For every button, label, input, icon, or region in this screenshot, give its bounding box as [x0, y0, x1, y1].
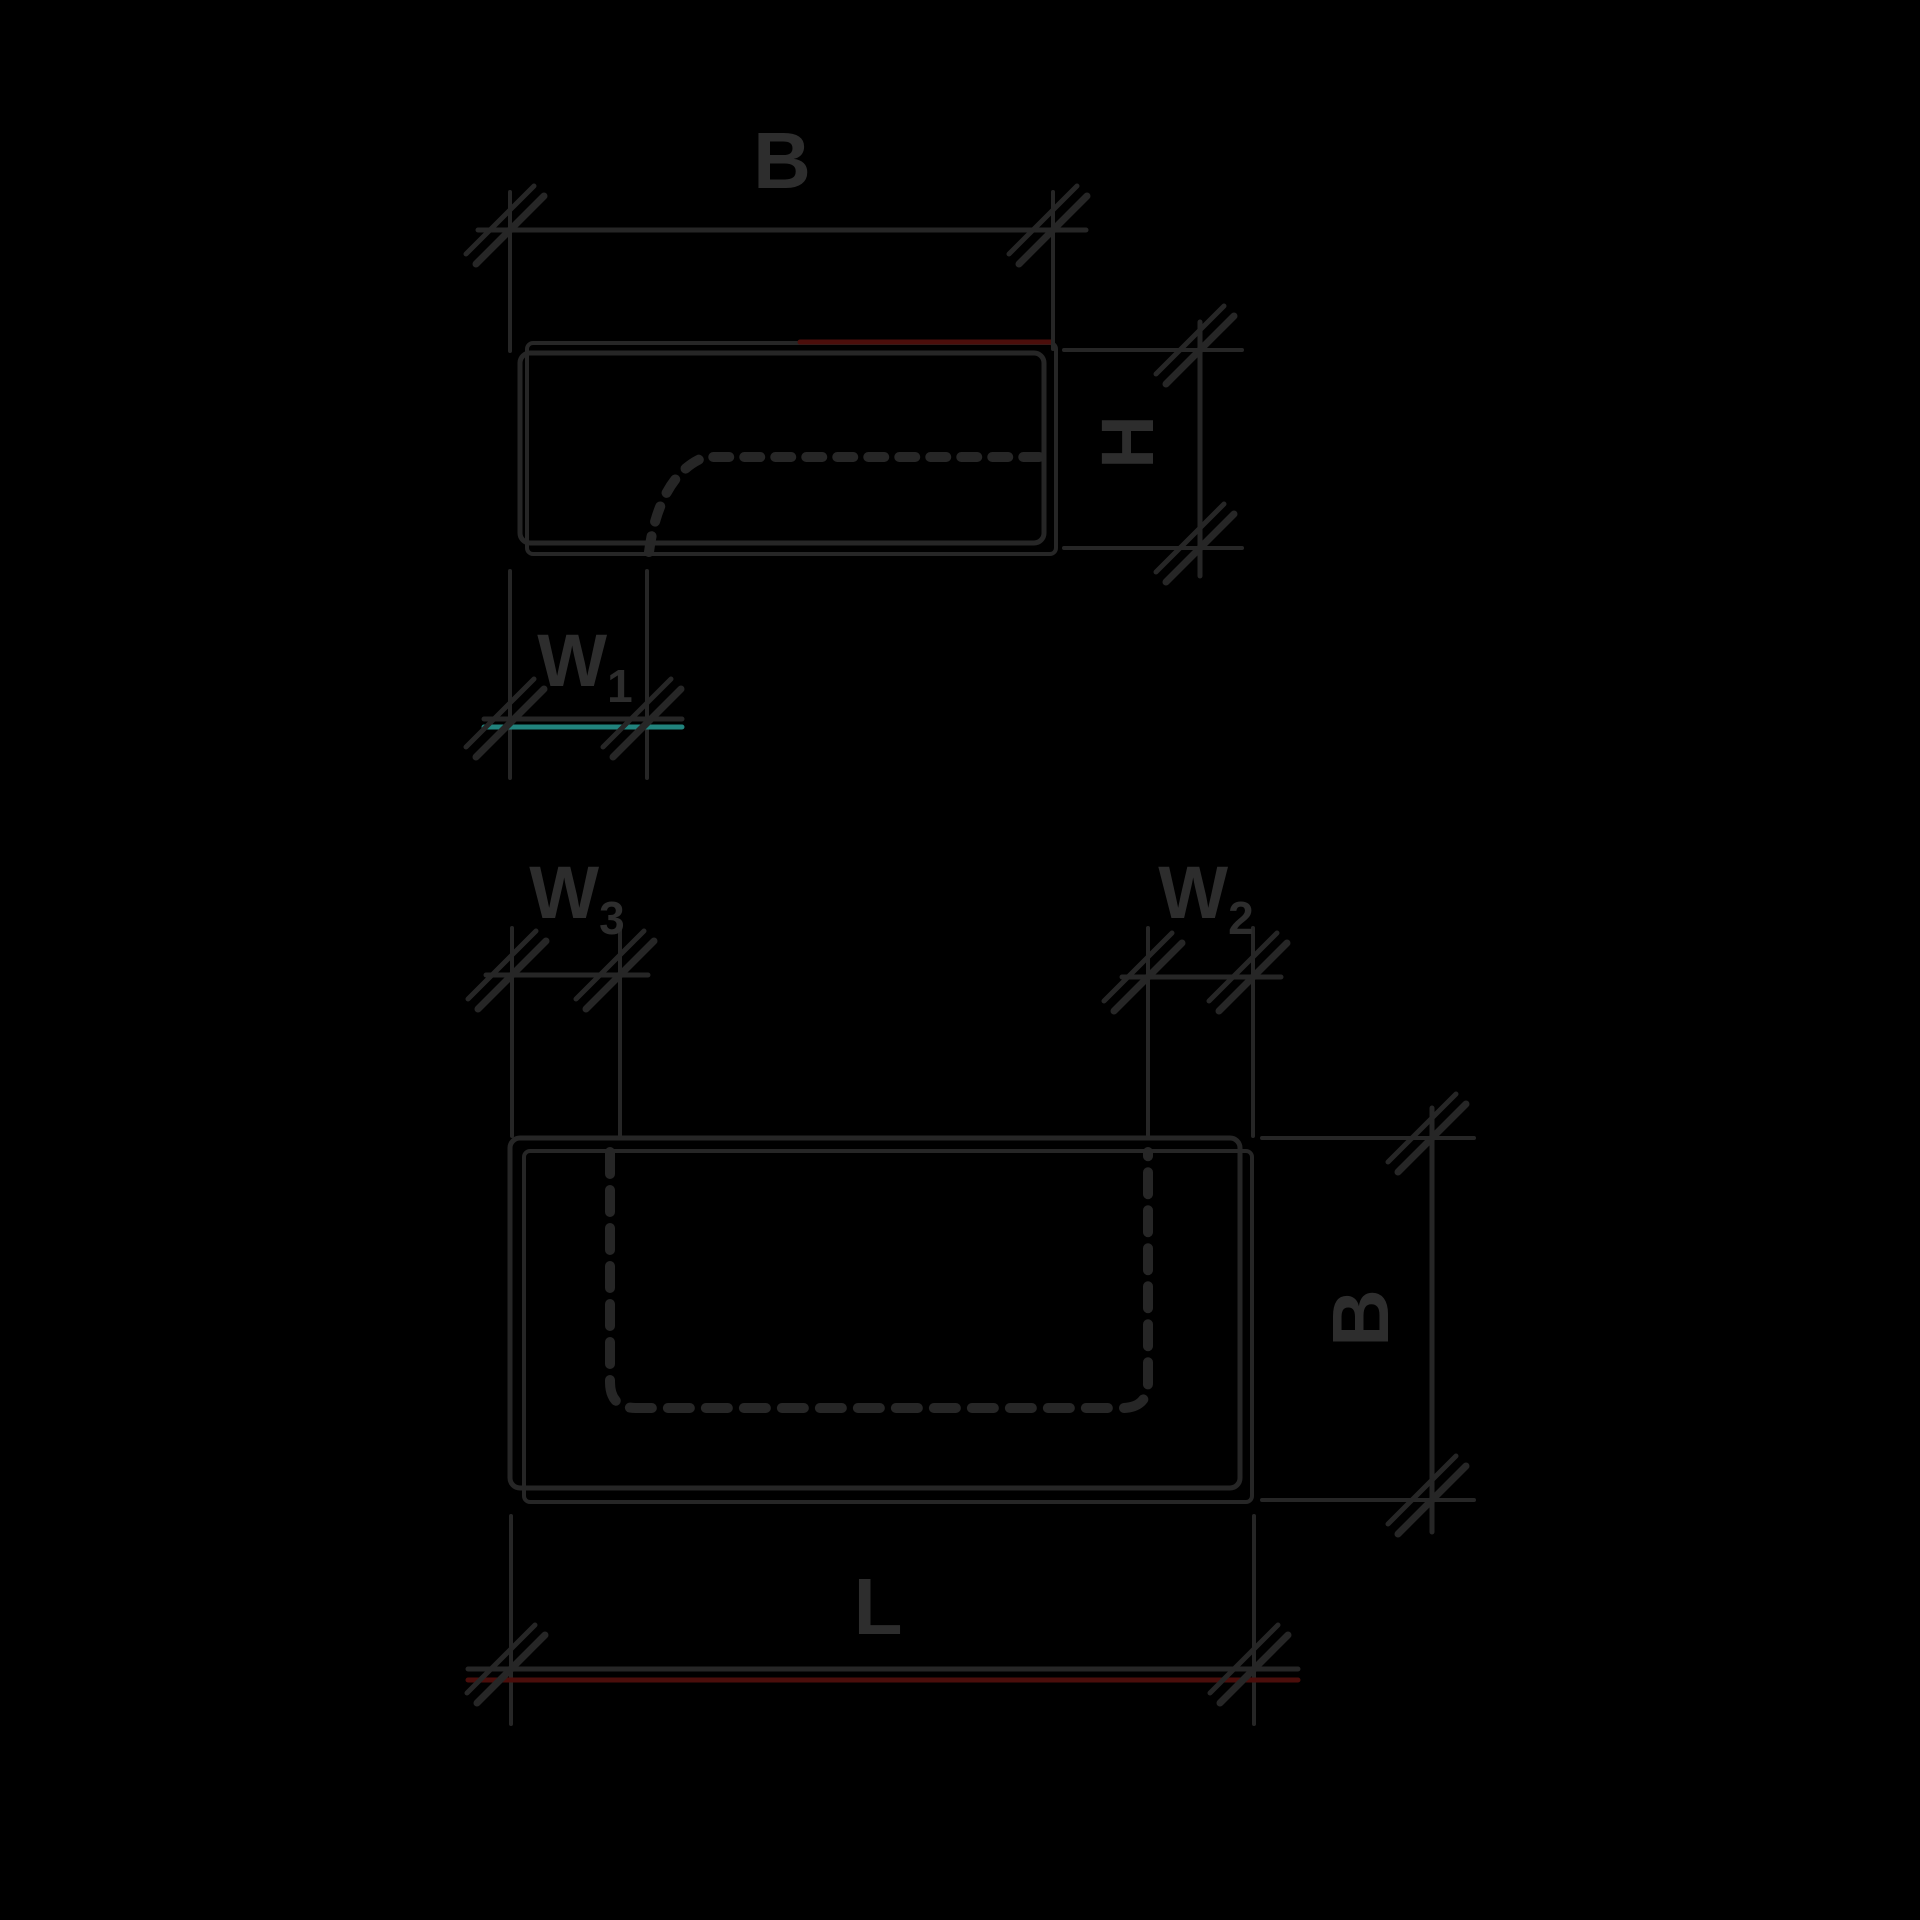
end-view-cavity-dashed-line: [649, 457, 1048, 552]
dimension-tick: [468, 931, 546, 1009]
technical-diagram: B H W1: [0, 0, 1920, 1920]
dimension-label-L: L: [854, 1562, 903, 1651]
dimension-tick: [466, 186, 544, 264]
end-view-outline: [520, 353, 1044, 543]
dimension-label-W2: W2: [1158, 851, 1253, 944]
dimension-tick: [467, 1625, 545, 1703]
dimension-label-W1: W1: [537, 619, 632, 712]
dimension-W3-wall-left: W3: [468, 851, 654, 1136]
side-view: W3 W2 B L: [467, 851, 1474, 1724]
dimension-W2-wall-right: W2: [1104, 851, 1287, 1136]
dimension-W1-wall: W1: [466, 571, 682, 778]
side-view-outline: [510, 1138, 1240, 1488]
end-view-outline-second-stroke: [527, 343, 1056, 554]
dimension-tick: [1104, 933, 1182, 1011]
dimension-tick: [1209, 933, 1287, 1011]
dimension-tick: [1009, 186, 1087, 264]
dimension-label-W3: W3: [529, 851, 624, 944]
dimension-H-height: H: [1064, 306, 1242, 582]
dimension-tick: [1388, 1094, 1466, 1172]
dimension-L-length: L: [467, 1516, 1298, 1724]
dimension-B-side: B: [1262, 1094, 1474, 1534]
dimension-tick: [1156, 504, 1234, 582]
dimension-tick: [1210, 1625, 1288, 1703]
dimension-label-B-top: B: [753, 116, 811, 205]
dimension-B-width: B: [466, 116, 1087, 351]
side-view-outline-second-stroke: [524, 1151, 1252, 1502]
end-view: B H W1: [466, 116, 1242, 778]
dimension-tick: [1156, 306, 1234, 384]
dimension-tick: [1388, 1456, 1466, 1534]
dimension-label-H: H: [1086, 415, 1169, 468]
side-view-cavity-dashed-outline: [610, 1152, 1148, 1408]
dimension-label-B-side: B: [1316, 1289, 1405, 1347]
